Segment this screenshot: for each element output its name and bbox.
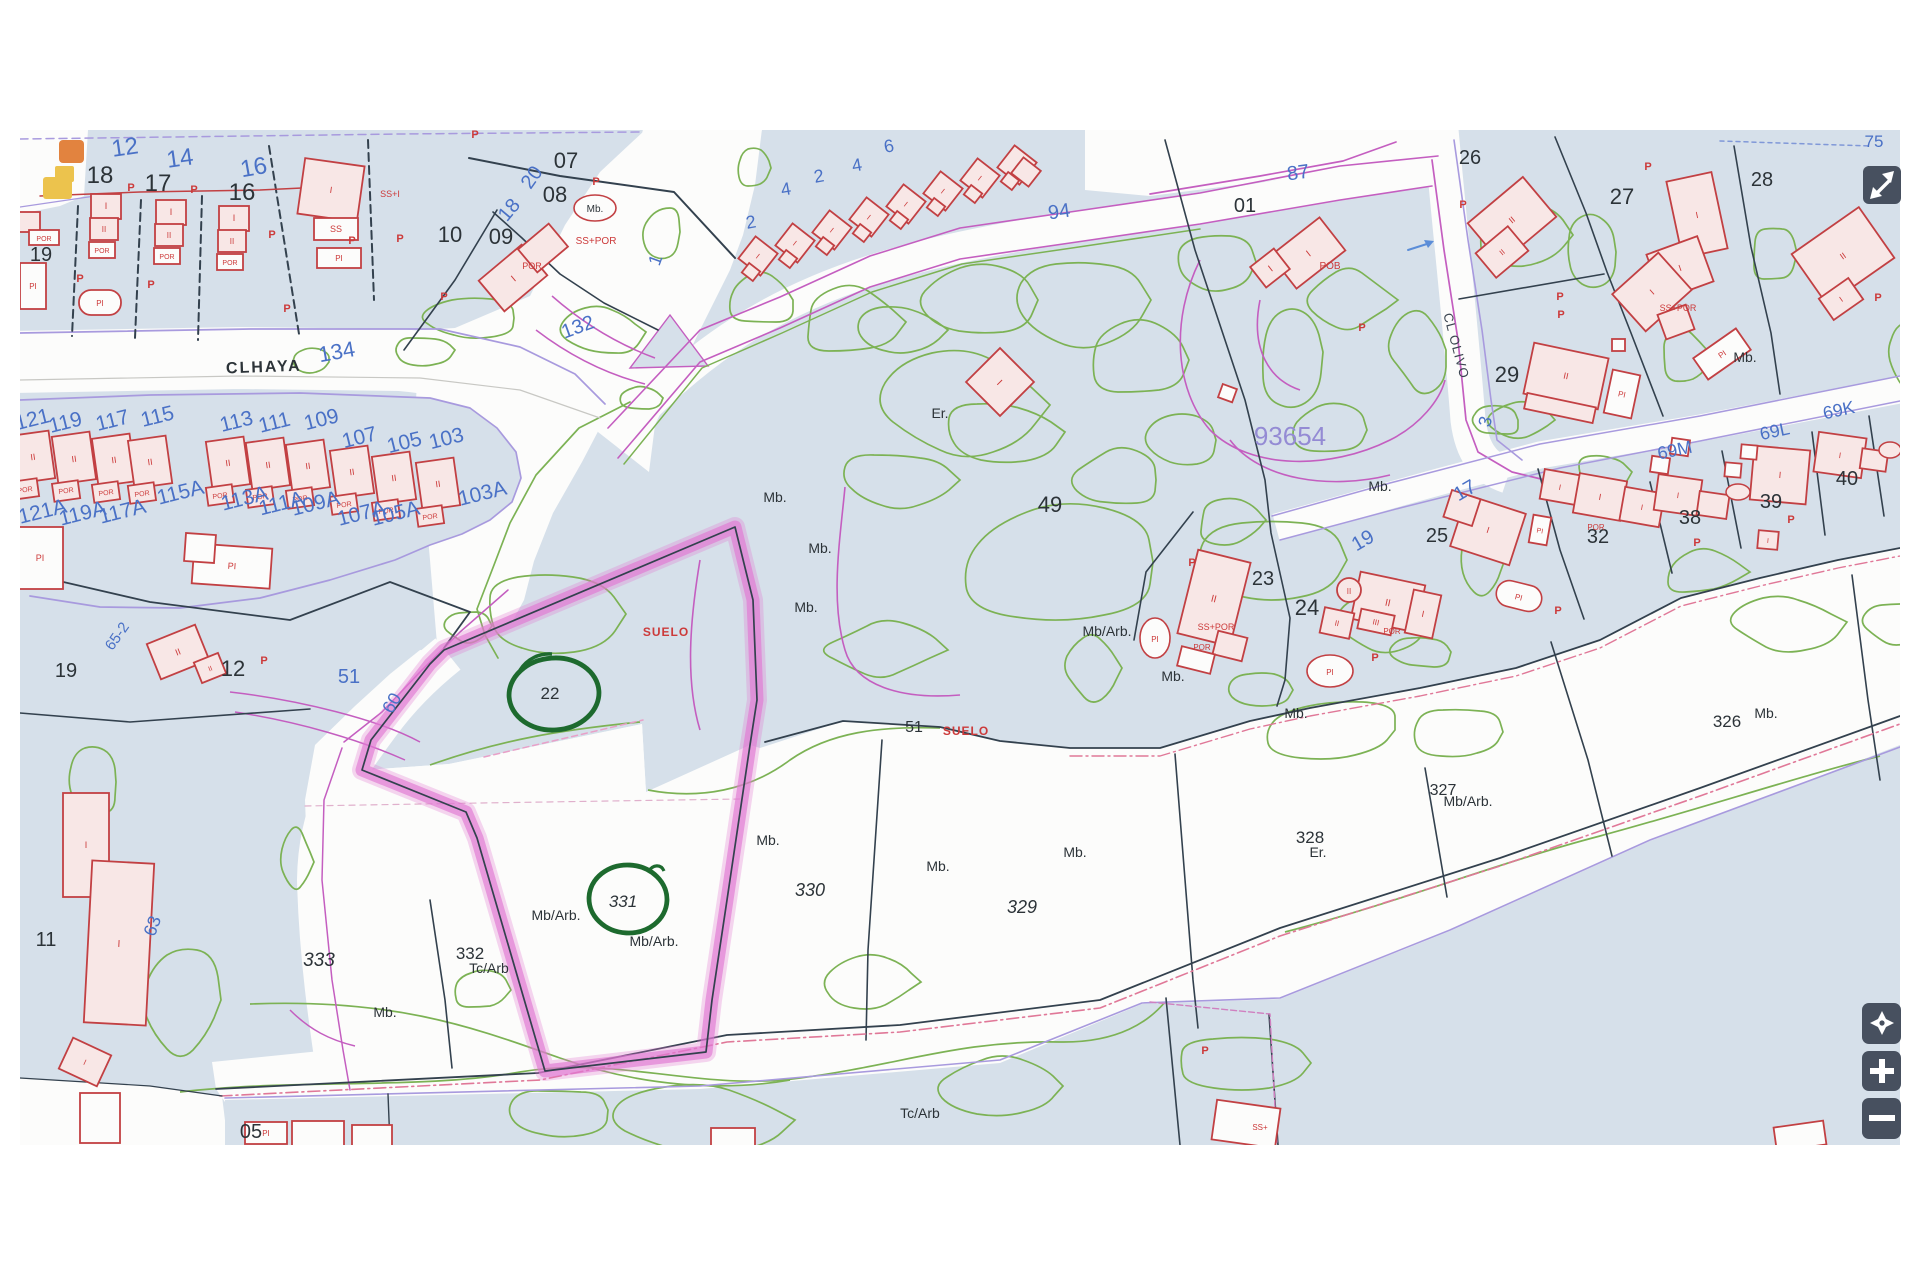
svg-text:P: P (190, 184, 197, 196)
svg-text:25: 25 (1426, 525, 1448, 547)
svg-text:P: P (592, 176, 599, 188)
svg-text:POR: POR (94, 248, 109, 255)
svg-text:39: 39 (1760, 491, 1782, 513)
svg-text:51: 51 (338, 666, 360, 688)
svg-text:CLHAYA: CLHAYA (226, 358, 302, 378)
svg-text:P: P (1787, 514, 1794, 526)
svg-text:93654: 93654 (1254, 421, 1326, 451)
svg-text:POR: POR (222, 260, 237, 267)
svg-text:Tc/Arb: Tc/Arb (469, 960, 509, 976)
svg-text:PI: PI (96, 299, 104, 308)
svg-text:10: 10 (438, 222, 462, 247)
svg-text:40: 40 (1836, 468, 1858, 490)
svg-text:P: P (1644, 161, 1651, 173)
svg-text:28: 28 (1751, 169, 1773, 191)
svg-text:23: 23 (1252, 568, 1274, 590)
svg-text:PI: PI (29, 282, 37, 291)
svg-text:II: II (167, 231, 171, 240)
svg-text:19: 19 (55, 660, 77, 682)
svg-text:II: II (102, 225, 106, 234)
svg-text:SS: SS (330, 224, 342, 234)
svg-text:I: I (233, 213, 236, 223)
svg-text:Mb.: Mb. (1063, 844, 1086, 860)
svg-text:POB: POB (1319, 261, 1340, 272)
svg-text:Er.: Er. (1309, 844, 1326, 860)
svg-text:330: 330 (795, 880, 825, 900)
svg-text:POR: POR (1383, 627, 1401, 636)
svg-text:07: 07 (554, 148, 578, 173)
svg-text:94: 94 (1047, 200, 1072, 225)
svg-text:POR: POR (522, 261, 542, 271)
svg-text:Mb.: Mb. (1368, 478, 1391, 494)
svg-text:Mb.: Mb. (1733, 349, 1756, 365)
svg-text:P: P (1459, 199, 1466, 211)
svg-text:P: P (1874, 292, 1881, 304)
svg-text:P: P (348, 235, 355, 247)
svg-text:11: 11 (36, 929, 57, 951)
svg-text:08: 08 (543, 182, 567, 207)
svg-text:P: P (1557, 309, 1564, 321)
svg-text:27: 27 (1610, 184, 1634, 209)
svg-text:Mb/Arb.: Mb/Arb. (629, 933, 678, 949)
svg-text:12: 12 (110, 132, 140, 162)
svg-text:18: 18 (87, 162, 114, 189)
svg-text:P: P (1201, 1045, 1208, 1057)
svg-text:PI: PI (1536, 527, 1544, 535)
svg-text:I: I (105, 201, 108, 211)
svg-text:SS+: SS+ (1252, 1123, 1268, 1132)
svg-text:P: P (260, 655, 267, 667)
svg-text:P: P (396, 233, 403, 245)
svg-text:I: I (170, 207, 173, 217)
svg-text:POR: POR (36, 236, 51, 243)
svg-text:329: 329 (1007, 897, 1037, 917)
svg-text:SS+POR: SS+POR (1198, 622, 1235, 632)
svg-text:16: 16 (238, 152, 269, 183)
svg-text:P: P (1556, 291, 1563, 303)
svg-text:Mb/Arb.: Mb/Arb. (1082, 623, 1131, 639)
svg-text:SUELO: SUELO (643, 625, 689, 639)
svg-text:09: 09 (489, 224, 513, 249)
svg-text:05: 05 (240, 1121, 262, 1143)
svg-text:14: 14 (165, 143, 195, 173)
svg-text:Tc/Arb: Tc/Arb (900, 1105, 940, 1121)
svg-text:P: P (1554, 605, 1561, 617)
svg-text:12: 12 (221, 656, 245, 681)
svg-text:PI: PI (1151, 635, 1159, 644)
svg-text:SS+POR: SS+POR (1660, 303, 1697, 313)
svg-text:Mb.: Mb. (1284, 705, 1307, 721)
svg-text:I: I (117, 939, 120, 950)
svg-text:PI: PI (227, 561, 236, 572)
svg-text:SUELO: SUELO (943, 724, 989, 738)
svg-text:38: 38 (1679, 507, 1701, 529)
svg-text:Mb.: Mb. (794, 599, 817, 615)
svg-text:Er.: Er. (931, 405, 948, 421)
svg-text:Mb/Arb.: Mb/Arb. (1443, 793, 1492, 809)
svg-text:P: P (76, 273, 83, 285)
svg-text:PI: PI (1326, 668, 1334, 677)
svg-text:I: I (85, 840, 88, 850)
svg-text:POR: POR (1193, 643, 1211, 652)
svg-text:51: 51 (905, 719, 923, 736)
svg-text:19: 19 (30, 244, 52, 266)
svg-text:P: P (127, 182, 134, 194)
svg-text:P: P (1358, 322, 1365, 334)
svg-text:PI: PI (36, 553, 45, 563)
svg-text:24: 24 (1295, 595, 1319, 620)
svg-text:Mb.: Mb. (808, 540, 831, 556)
svg-text:SS+POR: SS+POR (576, 236, 617, 247)
svg-text:Mb.: Mb. (756, 832, 779, 848)
svg-text:Mb.: Mb. (1161, 668, 1184, 684)
svg-text:Mb.: Mb. (587, 204, 604, 215)
svg-text:Mb.: Mb. (763, 489, 786, 505)
svg-text:P: P (147, 279, 154, 291)
svg-text:SS+I: SS+I (380, 189, 400, 199)
svg-text:Mb.: Mb. (1754, 705, 1777, 721)
svg-text:P: P (268, 229, 275, 241)
svg-text:17: 17 (145, 170, 172, 197)
svg-text:49: 49 (1038, 492, 1062, 517)
svg-text:P: P (1188, 557, 1195, 569)
svg-text:P: P (1693, 537, 1700, 549)
svg-text:P: P (471, 129, 478, 141)
svg-text:Mb/Arb.: Mb/Arb. (531, 907, 580, 923)
svg-text:P: P (1371, 652, 1378, 664)
svg-text:Mb.: Mb. (373, 1004, 396, 1020)
svg-text:POR: POR (1587, 523, 1605, 532)
svg-text:01: 01 (1234, 195, 1256, 217)
svg-text:II: II (230, 237, 234, 246)
svg-text:333: 333 (303, 950, 335, 971)
svg-text:29: 29 (1495, 362, 1519, 387)
svg-text:P: P (440, 291, 447, 303)
svg-text:PI: PI (262, 1129, 270, 1138)
svg-text:POR: POR (159, 254, 174, 261)
svg-text:II: II (1347, 587, 1351, 596)
svg-text:326: 326 (1713, 712, 1741, 731)
svg-text:PI: PI (335, 254, 343, 263)
svg-text:75: 75 (1865, 132, 1884, 151)
svg-text:26: 26 (1459, 147, 1481, 169)
svg-text:87: 87 (1286, 161, 1311, 186)
svg-text:P: P (283, 303, 290, 315)
svg-text:22: 22 (541, 684, 560, 703)
svg-text:331: 331 (609, 892, 637, 911)
svg-text:Mb.: Mb. (926, 858, 949, 874)
